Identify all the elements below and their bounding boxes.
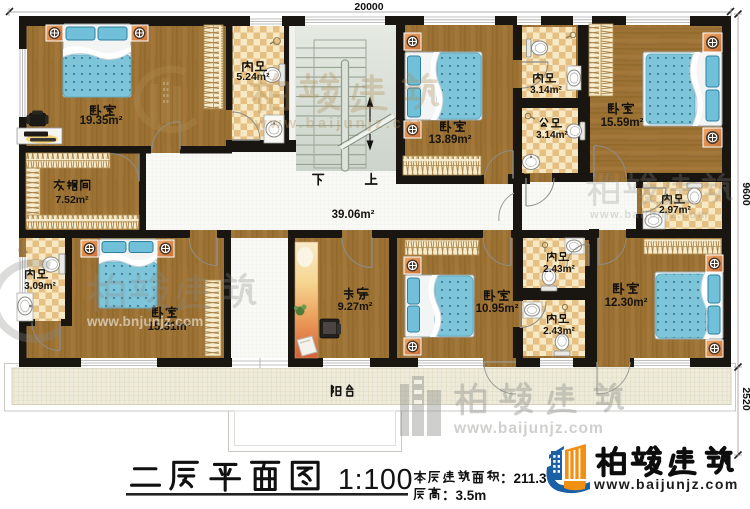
svg-text:3.09m²: 3.09m²	[24, 281, 56, 292]
svg-text:www.baijunjz.com: www.baijunjz.com	[453, 420, 604, 437]
svg-text:39.06m²: 39.06m²	[332, 209, 375, 221]
svg-text:：211.3: ：211.3	[500, 471, 547, 486]
svg-text:5.24m²: 5.24m²	[236, 71, 270, 83]
svg-text:2.43m²: 2.43m²	[543, 264, 575, 275]
svg-text:13.89m²: 13.89m²	[429, 134, 472, 146]
svg-text:19.35m²: 19.35m²	[80, 115, 123, 127]
svg-text:2520: 2520	[740, 387, 750, 411]
svg-text:9600: 9600	[740, 182, 750, 206]
svg-text:www.baijunjz.com: www.baijunjz.com	[589, 209, 709, 221]
svg-text:15.59m²: 15.59m²	[601, 117, 644, 129]
svg-text:10.95m²: 10.95m²	[476, 303, 519, 315]
svg-text:12.30m²: 12.30m²	[605, 297, 648, 309]
svg-text:1:100: 1:100	[338, 464, 413, 496]
svg-text:：3.5m: ：3.5m	[442, 488, 486, 503]
svg-text:www.bnjunjz.com: www.bnjunjz.com	[86, 314, 204, 329]
svg-text:9.27m²: 9.27m²	[338, 301, 373, 313]
svg-text:7.52m²: 7.52m²	[55, 194, 89, 206]
svg-text:2.43m²: 2.43m²	[543, 326, 575, 337]
svg-text:www.baijunjz.com: www.baijunjz.com	[254, 115, 432, 132]
svg-text:www.baijunjz.com: www.baijunjz.com	[593, 476, 739, 492]
svg-text:3.14m²: 3.14m²	[530, 85, 562, 96]
svg-text:3.14m²: 3.14m²	[536, 130, 568, 141]
svg-text:20000: 20000	[354, 1, 383, 13]
